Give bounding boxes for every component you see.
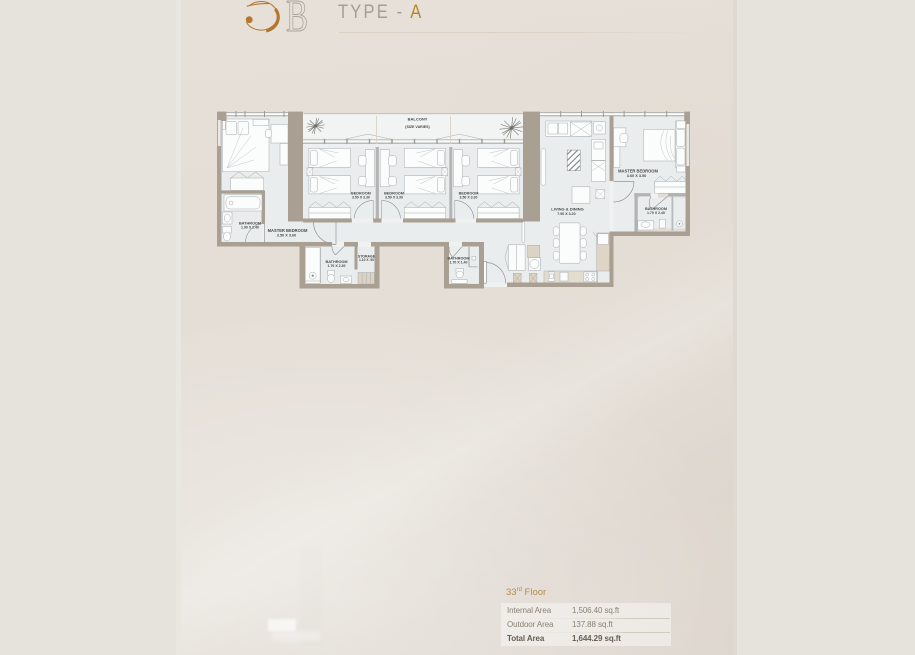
svg-text:MASTER BEDROOM: MASTER BEDROOM [618,168,658,173]
svg-text:3.50 X 3.30: 3.50 X 3.30 [460,195,478,199]
svg-text:3.60 X 3.50: 3.60 X 3.50 [627,174,646,178]
svg-text:BALCONY: BALCONY [408,117,428,122]
svg-text:1.70 X 1.40: 1.70 X 1.40 [450,260,468,264]
svg-text:3.50 X 3.30: 3.50 X 3.30 [352,195,370,199]
svg-text:(SIZE VARIES): (SIZE VARIES) [405,125,430,129]
svg-text:1.70 X 2.40: 1.70 X 2.40 [647,211,665,215]
svg-text:3.50 X 3.60: 3.50 X 3.60 [277,234,296,238]
svg-text:LIVING & DINING: LIVING & DINING [551,207,583,212]
svg-text:1.70 X 2.30: 1.70 X 2.30 [328,264,346,268]
svg-text:1.90 X 2.40: 1.90 X 2.40 [241,225,259,229]
svg-text:7.90 X 3.20: 7.90 X 3.20 [557,212,575,216]
svg-text:MASTER BEDROOM: MASTER BEDROOM [268,228,308,233]
svg-text:1.10 X .90: 1.10 X .90 [359,258,374,262]
svg-text:3.50 X 3.30: 3.50 X 3.30 [385,195,403,199]
